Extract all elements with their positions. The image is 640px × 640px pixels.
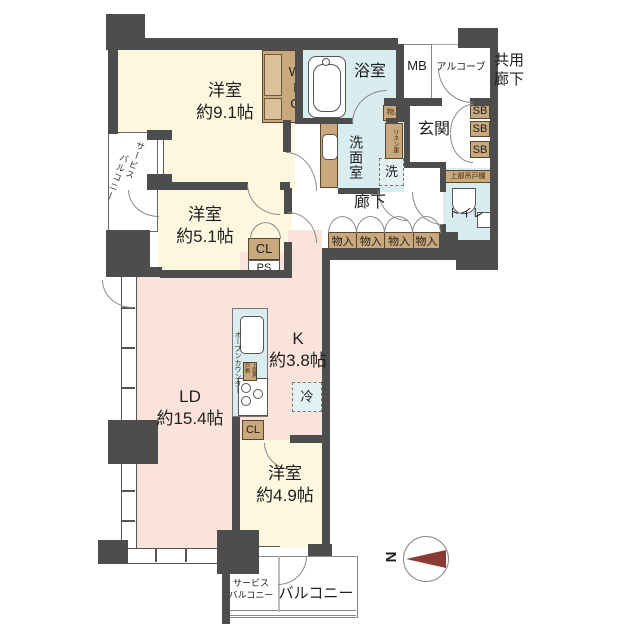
wall [295, 44, 303, 124]
wall [147, 130, 172, 140]
wall [160, 182, 248, 190]
open-counter-label: オープンカウンター [232, 314, 243, 410]
wall [384, 98, 442, 106]
washroom-label: 洗面室 [346, 126, 366, 188]
floor-plan: サービス バルコニー サービス バルコニー バルコニー 上部吊戸棚 冷 洗 上部… [0, 0, 640, 640]
wall [303, 118, 353, 124]
fridge-label: 冷 [292, 389, 322, 405]
toilet-label: トイレ [444, 206, 488, 222]
hall-storage-bifold-arc [384, 216, 399, 233]
linen-label: リネン庫 [387, 125, 401, 157]
hall-storage-bifold-arc [370, 216, 385, 233]
living-bottom-window [128, 548, 218, 564]
wall [386, 118, 398, 124]
wall [222, 556, 230, 624]
shoe-box-3-label: SB [470, 143, 490, 157]
wall [440, 224, 446, 250]
compass-needle-icon [406, 550, 446, 568]
toilet-upper-shelf-label: 上部吊戸棚 [445, 171, 491, 182]
bathtub-inner [313, 64, 341, 112]
kitchen-label: K約3.8帖 [252, 327, 344, 373]
common-corridor-label: 共用廊下 [494, 50, 542, 90]
hall-storage-bifold-arc [342, 216, 357, 233]
wall [108, 50, 118, 134]
hall-storage-bifold-arc [398, 216, 413, 233]
stove-burner-icon [253, 389, 263, 399]
washer-label: 洗 [379, 164, 404, 180]
wall [98, 540, 128, 564]
bedroom2-label: 洋室約5.1帖 [150, 203, 260, 249]
balcony-label: バルコニー [280, 584, 352, 604]
wall [396, 44, 404, 122]
balcony-rail [224, 610, 356, 616]
washbasin-icon [322, 134, 338, 160]
wall [106, 230, 150, 270]
shoe-box-1-label: SB [470, 104, 490, 118]
meter-box-label: MB [402, 56, 432, 76]
shoe-box-2-label: SB [470, 122, 490, 136]
wall [456, 240, 498, 270]
wall [406, 162, 446, 168]
bedroom1-door-arc [286, 152, 317, 191]
wall [290, 435, 324, 443]
hall-storage-bifold-arc [328, 216, 343, 233]
bedroom3-label: 洋室約4.9帖 [230, 462, 340, 508]
hall-storage-bifold-arc [412, 216, 427, 233]
hallway-label: 廊下 [340, 193, 400, 213]
bedroom1-label: 洋室約9.1帖 [160, 78, 290, 126]
bath-label: 浴室 [340, 61, 400, 83]
genkan-label: 玄関 [408, 119, 460, 141]
wall [106, 38, 398, 50]
service-balcony-bottom-label: サービス バルコニー [226, 576, 276, 604]
wall [440, 168, 446, 192]
living-casement-window-arc [102, 280, 133, 308]
wall [308, 544, 332, 556]
wall [284, 188, 292, 214]
compass-north-label: N [384, 549, 400, 565]
hall-to-ldk-door-arc [288, 212, 317, 243]
bath-faucet-icon [322, 58, 330, 66]
wall [160, 270, 292, 278]
hall-storage-bifold-arc [356, 216, 371, 233]
